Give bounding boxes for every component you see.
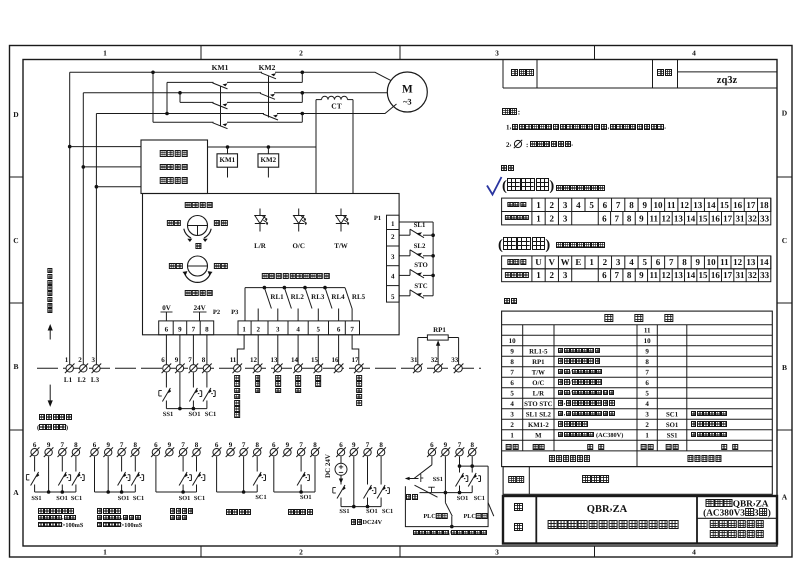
svg-text:11: 11: [720, 257, 729, 267]
svg-text:13: 13: [674, 270, 684, 280]
svg-text:RL1-5: RL1-5: [529, 348, 548, 355]
svg-text:17: 17: [723, 213, 733, 223]
svg-text:33: 33: [760, 213, 770, 223]
svg-text:7: 7: [614, 270, 619, 280]
svg-text:10: 10: [707, 257, 717, 267]
svg-text:12: 12: [662, 213, 672, 223]
svg-text:2: 2: [510, 421, 514, 429]
svg-text:4: 4: [692, 49, 696, 58]
svg-text:8: 8: [627, 213, 632, 223]
svg-text:1: 1: [645, 432, 649, 440]
svg-text:6: 6: [645, 379, 649, 387]
svg-text:17: 17: [723, 270, 733, 280]
svg-text:12: 12: [662, 270, 672, 280]
svg-text:14: 14: [686, 213, 696, 223]
svg-text:6: 6: [656, 257, 661, 267]
svg-text:9: 9: [639, 270, 644, 280]
svg-text:3: 3: [495, 49, 499, 58]
svg-text:11: 11: [649, 270, 658, 280]
svg-text:CT: CT: [331, 102, 341, 111]
svg-text:6: 6: [602, 270, 607, 280]
svg-text:13: 13: [746, 257, 756, 267]
svg-text:3: 3: [616, 257, 621, 267]
svg-text:10: 10: [644, 337, 652, 345]
svg-text:15: 15: [699, 270, 709, 280]
svg-text:1: 1: [103, 49, 107, 58]
svg-text:10: 10: [653, 200, 663, 210]
svg-text:3: 3: [495, 548, 499, 557]
svg-text:9: 9: [645, 347, 649, 355]
svg-text:8: 8: [682, 257, 687, 267]
svg-text:32: 32: [748, 270, 758, 280]
svg-text:10: 10: [509, 337, 517, 345]
svg-text:11: 11: [667, 200, 676, 210]
svg-text:O/C: O/C: [532, 380, 544, 387]
svg-text:3: 3: [563, 200, 568, 210]
svg-text:5: 5: [642, 257, 647, 267]
svg-text:SC1: SC1: [666, 411, 679, 418]
svg-text:5: 5: [391, 293, 395, 301]
svg-text:A: A: [13, 488, 19, 497]
svg-text:M: M: [535, 433, 542, 440]
svg-text:2: 2: [299, 49, 303, 58]
svg-text:14: 14: [707, 200, 717, 210]
svg-text:1: 1: [510, 432, 514, 440]
svg-text:2: 2: [299, 548, 303, 557]
svg-text:14: 14: [760, 257, 770, 267]
svg-text:4: 4: [576, 200, 581, 210]
svg-text:5: 5: [589, 200, 594, 210]
svg-text:SL1 SL2: SL1 SL2: [526, 411, 552, 418]
svg-text:3: 3: [391, 253, 395, 261]
svg-text:E: E: [575, 257, 581, 267]
svg-text:32: 32: [748, 213, 758, 223]
svg-text:6: 6: [165, 325, 169, 333]
svg-text:4: 4: [645, 400, 649, 408]
svg-text:B: B: [13, 362, 18, 371]
svg-text:A: A: [782, 493, 788, 502]
svg-text:33: 33: [760, 270, 770, 280]
svg-text:5: 5: [510, 389, 514, 397]
svg-text:U: U: [535, 257, 542, 267]
svg-text:B: B: [782, 363, 787, 372]
svg-text:4: 4: [391, 273, 395, 281]
svg-text:D: D: [13, 110, 19, 119]
svg-text:1: 1: [103, 548, 107, 557]
svg-text:1: 1: [242, 325, 246, 333]
svg-text:2: 2: [550, 213, 555, 223]
svg-text:1: 1: [391, 220, 395, 228]
svg-text:3: 3: [563, 270, 568, 280]
svg-text:12: 12: [680, 200, 690, 210]
svg-text:6: 6: [337, 325, 341, 333]
svg-text:9: 9: [178, 325, 182, 333]
svg-text:7: 7: [645, 368, 649, 376]
svg-text:12: 12: [733, 257, 743, 267]
svg-text:4: 4: [629, 257, 634, 267]
svg-text:16: 16: [711, 270, 721, 280]
svg-text:SO1: SO1: [666, 422, 679, 429]
svg-text:3: 3: [276, 325, 280, 333]
svg-text:W: W: [561, 257, 570, 267]
svg-text:11: 11: [644, 326, 651, 334]
svg-text:1: 1: [536, 270, 541, 280]
svg-text:9: 9: [510, 347, 514, 355]
svg-text:STO STC: STO STC: [524, 401, 552, 408]
svg-text:7: 7: [510, 368, 514, 376]
svg-text:8: 8: [510, 358, 514, 366]
svg-text:KM1-2: KM1-2: [528, 422, 549, 429]
svg-text:V: V: [549, 257, 556, 267]
svg-text:7: 7: [350, 325, 354, 333]
svg-text:13: 13: [674, 213, 684, 223]
svg-text:16: 16: [711, 213, 721, 223]
svg-text:3: 3: [563, 213, 568, 223]
svg-text:D: D: [782, 109, 788, 118]
svg-text:9: 9: [642, 200, 647, 210]
svg-text:L/R: L/R: [533, 390, 544, 397]
svg-text:T/W: T/W: [532, 369, 545, 376]
svg-text:31: 31: [735, 270, 745, 280]
svg-text:~3: ~3: [403, 97, 412, 107]
svg-text:15: 15: [720, 200, 730, 210]
svg-text:14: 14: [686, 270, 696, 280]
svg-text:1: 1: [536, 200, 541, 210]
svg-text:4: 4: [510, 400, 514, 408]
svg-text:2: 2: [550, 270, 555, 280]
svg-text:6: 6: [603, 200, 608, 210]
svg-text:7: 7: [614, 213, 619, 223]
svg-text:3: 3: [510, 410, 514, 418]
svg-text:2: 2: [645, 421, 649, 429]
svg-text:3: 3: [645, 410, 649, 418]
svg-text:7: 7: [616, 200, 621, 210]
svg-text:SS1: SS1: [667, 433, 679, 440]
svg-text:2: 2: [256, 325, 260, 333]
svg-text:16: 16: [733, 200, 743, 210]
svg-text:13: 13: [693, 200, 703, 210]
svg-text:M: M: [402, 84, 413, 96]
svg-text:1: 1: [536, 213, 541, 223]
svg-text:2: 2: [391, 233, 395, 241]
svg-text:9: 9: [696, 257, 701, 267]
svg-text:8: 8: [627, 270, 632, 280]
svg-text:4: 4: [296, 325, 300, 333]
svg-text:C: C: [782, 236, 787, 245]
svg-text:15: 15: [699, 213, 709, 223]
svg-text:8: 8: [629, 200, 634, 210]
svg-text:5: 5: [317, 325, 321, 333]
svg-text:zq3z: zq3z: [717, 75, 738, 86]
svg-text:4: 4: [692, 548, 696, 557]
svg-text:2: 2: [603, 257, 608, 267]
svg-text:9: 9: [639, 213, 644, 223]
svg-text:8: 8: [645, 358, 649, 366]
svg-text:7: 7: [192, 325, 196, 333]
svg-text:1: 1: [589, 257, 594, 267]
svg-text:17: 17: [746, 200, 756, 210]
svg-text:18: 18: [760, 200, 770, 210]
svg-text:RP1: RP1: [532, 359, 545, 366]
svg-text:6: 6: [602, 213, 607, 223]
svg-text:6: 6: [510, 379, 514, 387]
svg-text:11: 11: [649, 213, 658, 223]
svg-text:C: C: [13, 236, 18, 245]
svg-text:8: 8: [205, 325, 209, 333]
svg-text:31: 31: [735, 213, 745, 223]
svg-text:2: 2: [550, 200, 555, 210]
svg-text:5: 5: [645, 389, 649, 397]
svg-text:7: 7: [669, 257, 674, 267]
